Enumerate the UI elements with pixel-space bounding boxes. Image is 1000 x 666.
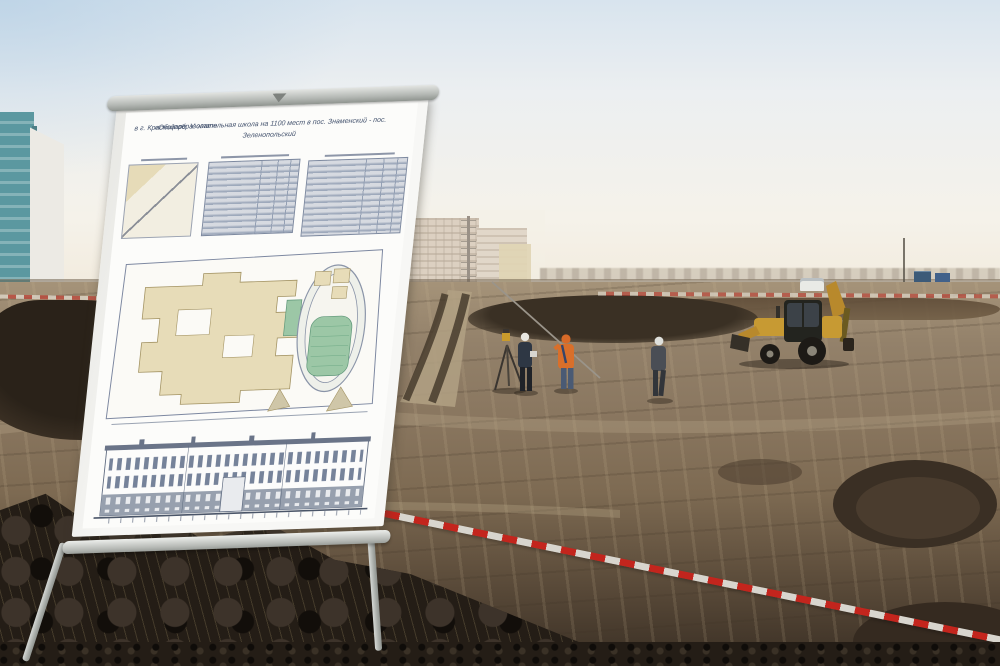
location-map [121,162,199,239]
clipboard [530,351,537,357]
legend-table [300,157,408,237]
easel-board: «Общеобразовательная школа на 1100 мест … [72,96,429,537]
poster-title: «Общеобразовательная школа на 1100 мест … [135,115,407,124]
white-helmet [521,333,529,341]
worker-grey [651,337,666,397]
white-helmet [655,337,664,346]
legend-table-caption [325,152,395,156]
surveyor-group [480,265,700,415]
theodolite [502,333,510,341]
worker-orange [553,334,574,389]
surveyor-dark [518,333,537,391]
flipchart-easel: «Общеобразовательная школа на 1100 мест … [71,85,430,544]
building-elevation-drawing [91,428,378,524]
orange-hood [561,334,570,343]
entrance [220,477,246,512]
site-plan-drawing [99,237,400,430]
foreground-soil-edge [0,642,1000,666]
indicators-table-caption [221,154,289,158]
backhoe-bucket [843,338,854,351]
construction-site-photo: «Общеобразовательная школа на 1100 мест … [0,0,1000,666]
plan-poster: «Общеобразовательная школа на 1100 мест … [82,103,418,529]
indicators-table [201,159,301,237]
backhoe-loader [726,272,866,370]
location-map-caption [141,158,187,162]
utility-pole [903,238,905,284]
